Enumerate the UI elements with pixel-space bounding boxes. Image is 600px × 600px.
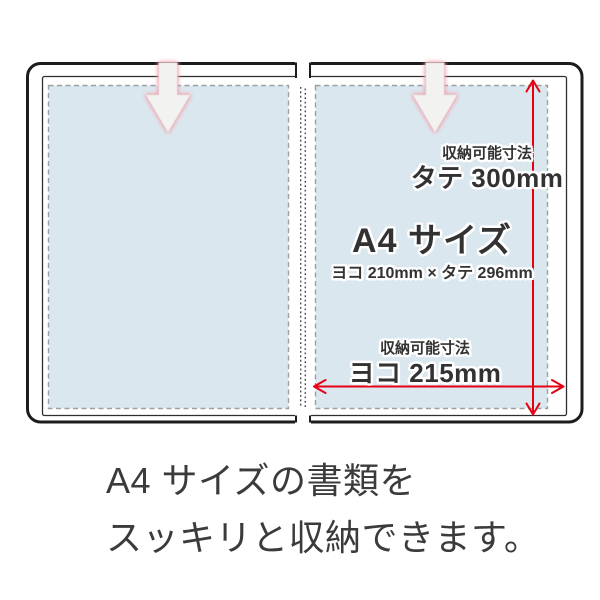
product-diagram: 収納可能寸法 タテ 300mm A4 サイズ ヨコ 210mm × タテ 296… [0,0,600,600]
paper-size-title: A4 サイズ [331,221,532,262]
caption-line-2: スッキリと収納できます。 [106,509,540,566]
vertical-dimension-value: タテ 300mm [411,163,564,194]
vertical-dimension-label: 収納可能寸法 [411,144,564,163]
horizontal-dimension-annotation: 収納可能寸法 ヨコ 215mm [349,339,502,389]
caption: A4 サイズの書類を スッキリと収納できます。 [106,452,540,566]
spine-notch-top [295,61,311,79]
vertical-dimension-annotation: 収納可能寸法 タテ 300mm [411,144,564,194]
horizontal-dimension-value: ヨコ 215mm [349,358,502,389]
horizontal-dimension-label: 収納可能寸法 [349,339,502,358]
spine-notch-bottom [295,414,311,426]
caption-line-1: A4 サイズの書類を [106,452,540,509]
paper-size-annotation: A4 サイズ ヨコ 210mm × タテ 296mm [331,221,532,285]
left-pocket [49,86,289,409]
paper-size-dimensions: ヨコ 210mm × タテ 296mm [331,262,532,285]
